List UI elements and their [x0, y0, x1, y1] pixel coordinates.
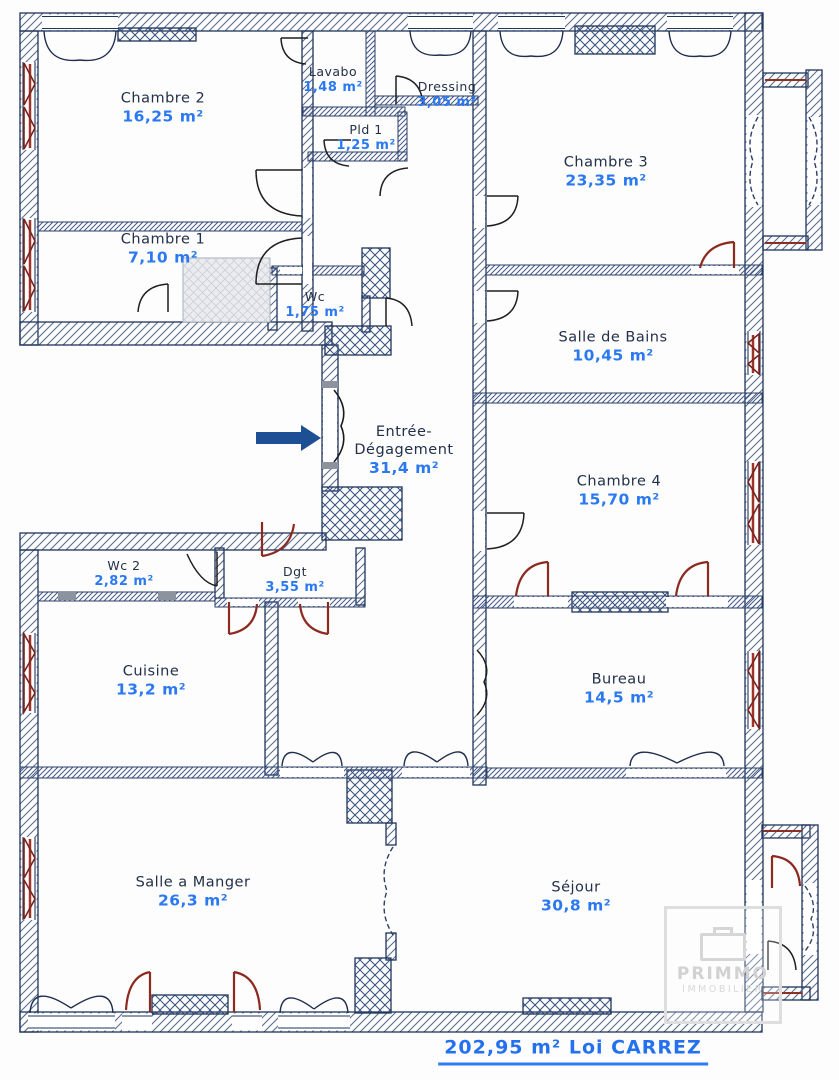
agency-watermark: PRIMMO IMMOBILIER — [664, 906, 782, 1024]
wall-openings — [22, 15, 821, 1031]
agency-subtitle: IMMOBILIER — [682, 984, 764, 996]
floor-plan-page: Chambre 2 16,25 m² Lavabo 1,48 m² Dressi… — [0, 0, 839, 1080]
total-area-label: 202,95 m² Loi CARREZ — [438, 1037, 708, 1066]
door-swings-red — [126, 242, 800, 1012]
wall-piers — [118, 26, 668, 1014]
door-swings-black — [138, 38, 796, 970]
bay-sills — [763, 80, 806, 993]
briefcase-icon — [700, 933, 746, 961]
interior-walls — [20, 31, 762, 778]
door-thresholds — [58, 381, 338, 600]
entrance-arrow-icon — [256, 425, 321, 451]
exterior-walls — [20, 13, 822, 1032]
agency-name: PRIMMO — [677, 965, 769, 984]
closet-alcove — [183, 258, 270, 322]
